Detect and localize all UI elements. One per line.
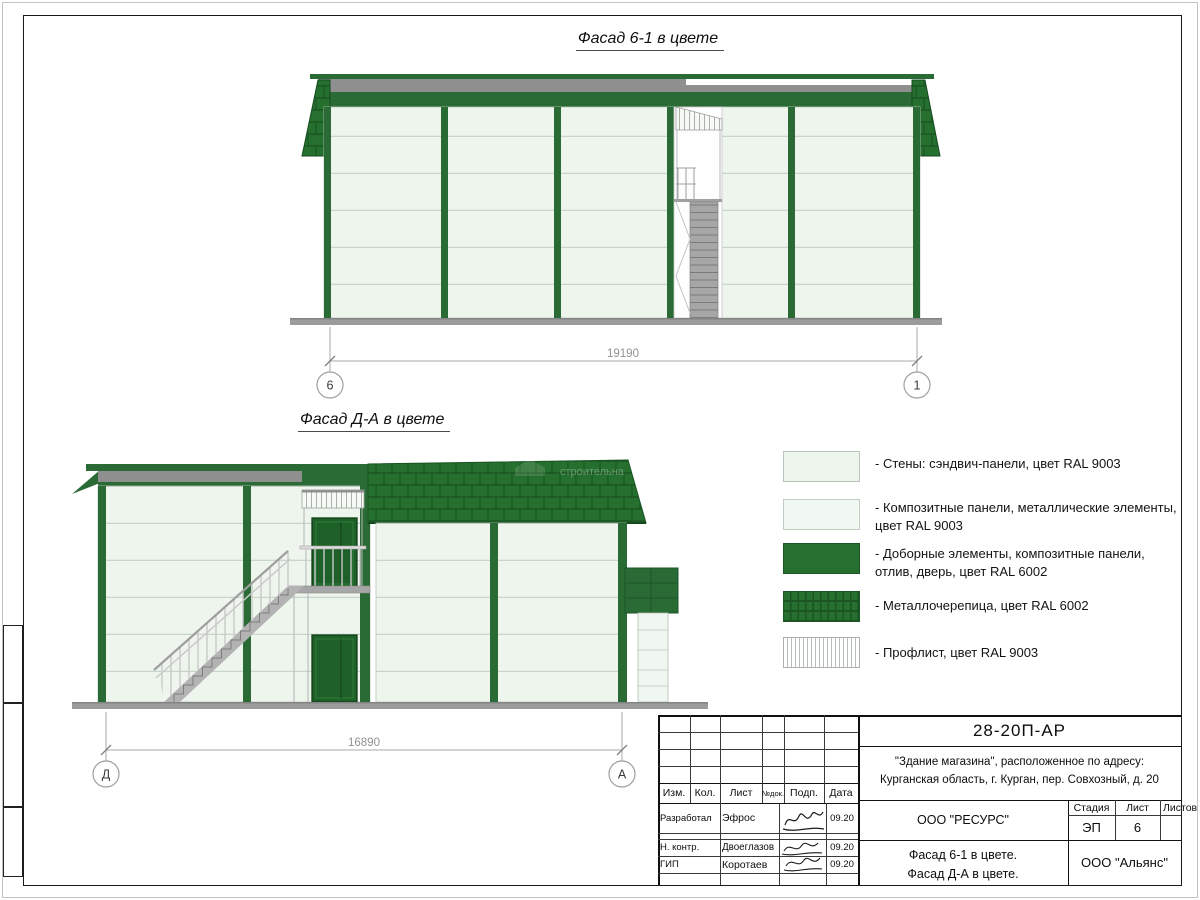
drawing-sheet: Фасад 6-1 в цвете Фасад Д-А в цвете xyxy=(0,0,1200,900)
drawing-frame xyxy=(23,15,1182,886)
